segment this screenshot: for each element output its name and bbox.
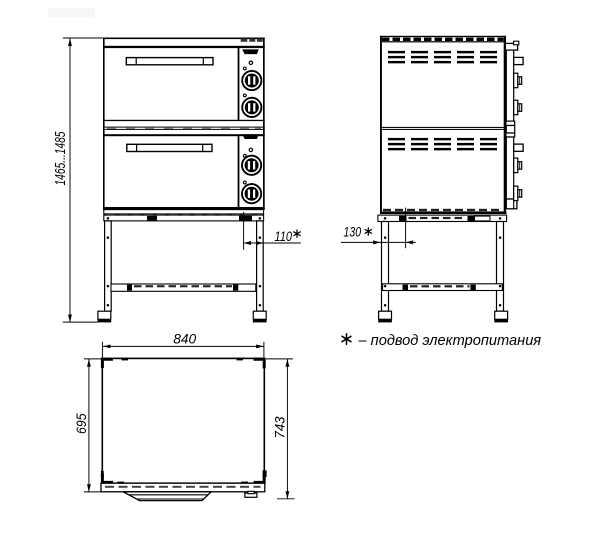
svg-text:840: 840 xyxy=(173,330,196,346)
svg-text:130: 130 xyxy=(344,225,362,240)
svg-text:110: 110 xyxy=(275,229,293,244)
svg-text:– подвод электропитания: – подвод электропитания xyxy=(358,333,542,349)
svg-text:1465...1485: 1465...1485 xyxy=(52,131,69,185)
svg-text:743: 743 xyxy=(272,416,287,439)
svg-text:695: 695 xyxy=(74,413,89,434)
